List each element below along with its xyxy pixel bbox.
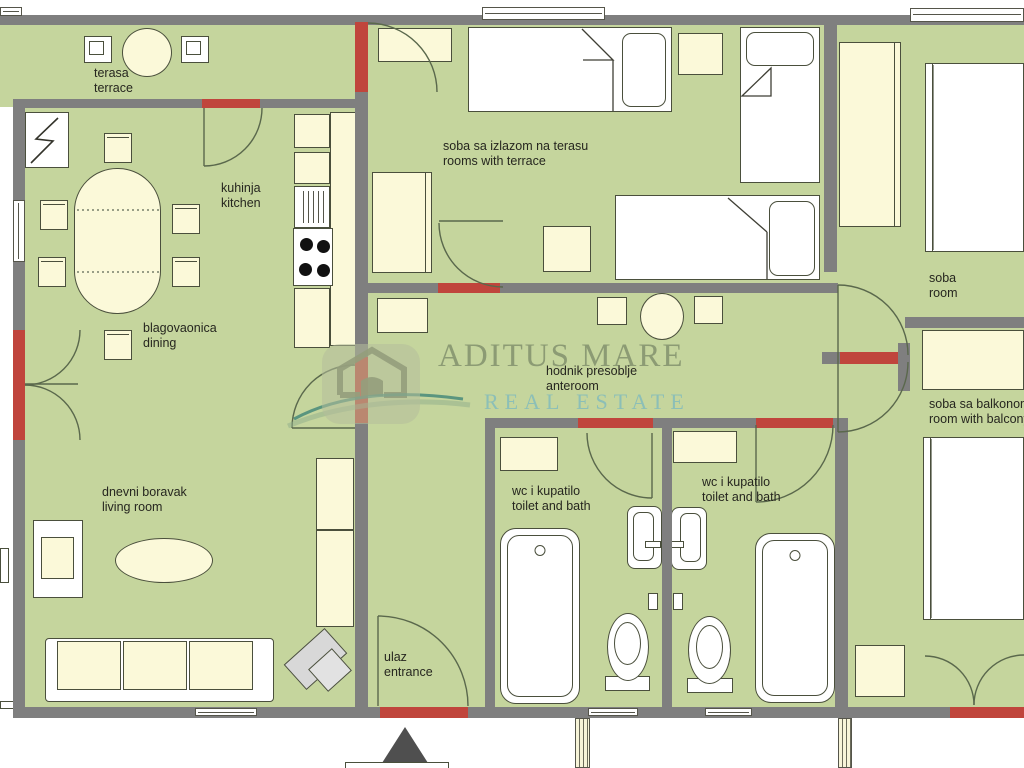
door-bath1 [578,418,653,428]
sofa [45,638,274,702]
room-wardrobe [839,42,901,227]
wall-bath1-left [485,418,495,707]
dining-chair-top [104,133,132,163]
sofa-cushion-1 [57,641,121,690]
window-top-corner [0,7,22,16]
kitchen-cabinet-2 [294,152,330,184]
burner-3 [299,263,312,276]
bath1-tub [500,528,580,704]
label-bedroom-terrace: soba sa izlazom na terasu rooms with ter… [443,139,588,169]
label-room-hr: soba [929,271,957,286]
label-entrance-hr: ulaz [384,650,433,665]
label-entrance-en: entrance [384,665,433,680]
door-dining-french [13,330,25,440]
living-cabinet-upper [316,458,354,530]
label-anteroom: hodnik presoblje anteroom [546,364,637,394]
kitchen-counter [330,112,358,346]
terrace-chair-left-seat [89,41,104,55]
burner-2 [317,240,330,253]
bath1-tub-drain [535,545,546,556]
bedroom-wardrobe [372,172,432,273]
dining-chair-bottom [104,330,132,360]
kitchen-sink-drainer [294,186,330,228]
window-bottom-bath1 [588,708,638,716]
label-entrance: ulaz entrance [384,650,433,680]
anteroom-stool [640,293,684,340]
drainer-stripes [299,191,325,223]
label-room-balcony-hr: soba sa balkonom [929,397,1024,412]
entrance-arrow-icon [382,727,428,763]
bath1-toilet-seat [614,622,641,665]
armchair [33,520,83,598]
label-room-en: room [929,286,957,301]
door-vestibule [840,352,898,364]
exterior-step-left [0,548,9,583]
label-dining-en: dining [143,336,217,351]
bedroom-nightstand-door [378,28,452,62]
burner-1 [300,238,313,251]
door-terrace-dining [202,99,260,108]
label-kitchen-en: kitchen [221,196,261,211]
terrace-chair-right [181,36,209,63]
window-top-bedroom [482,7,605,20]
bath2-sink [671,507,707,570]
label-living-hr: dnevni boravak [102,485,187,500]
label-kitchen: kuhinja kitchen [221,181,261,211]
bath1-faucet [645,541,661,548]
bath1-sink-basin [633,512,654,561]
bath1-paper-holder [648,593,658,610]
bath2-tub-inner [762,540,828,696]
door-balcony [950,707,1024,718]
wall-vestibule-cap [822,352,840,364]
label-bath2-en: toilet and bath [702,490,781,505]
bed-3-pillow [769,201,815,276]
bath1-toilet-bowl [607,613,649,681]
door-bedroom-anteroom [438,283,500,293]
label-bath1: wc i kupatilo toilet and bath [512,484,591,514]
balcony-post-right [838,718,852,768]
kitchen-cabinet-3 [294,288,330,348]
balcony-room-wardrobe [922,330,1024,390]
bath2-tub [755,533,835,703]
wall-vestibule-stub [898,343,910,391]
sofa-cushion-3 [189,641,253,690]
label-living: dnevni boravak living room [102,485,187,515]
window-top-room [910,8,1024,22]
bath2-paper-holder [673,593,683,610]
armchair-cushion [41,537,74,579]
entrance-arrow-base [345,762,449,768]
dining-chair-right2 [172,257,200,287]
balcony-post-left [575,718,590,768]
label-dining-hr: blagovaonica [143,321,217,336]
label-bedroom-terrace-en: rooms with terrace [443,154,588,169]
label-living-en: living room [102,500,187,515]
living-cabinet-lower [316,530,354,627]
label-dining: blagovaonica dining [143,321,217,351]
burner-4 [317,264,330,277]
dining-table [74,168,161,314]
label-anteroom-en: anteroom [546,379,637,394]
wall-dining-top [13,99,368,108]
wall-bath-divider [662,418,672,707]
label-kitchen-hr: kuhinja [221,181,261,196]
dining-chair-right1 [172,204,200,234]
bed-1-pillow [622,33,666,107]
dining-chair-left1 [40,200,68,230]
bedroom-nightstand-mid [543,226,591,272]
label-terrace-hr: terasa [94,66,133,81]
label-bath1-en: toilet and bath [512,499,591,514]
balcony-room-nightstand [855,645,905,697]
sofa-cushion-2 [123,641,187,690]
room-bed [925,63,1024,252]
wall-room-bottom [905,317,1024,328]
balcony-room-bed [923,437,1024,620]
window-bottom-bath2 [705,708,752,716]
label-terrace-en: terrace [94,81,133,96]
wall-bath2-right [835,418,848,707]
bath2-toilet-bowl [688,616,731,684]
bed-2-pillow [746,32,814,66]
bath2-shelf [673,431,737,463]
anteroom-table-right [694,296,723,324]
terrace-chair-right-seat [186,41,201,55]
bath1-shelf [500,437,558,471]
door-bath2 [756,418,833,428]
dining-chair-left2 [38,257,66,287]
label-terrace: terasa terrace [94,66,133,96]
window-left-dining [13,200,25,262]
door-terrace-bedroom [355,22,368,92]
anteroom-cabinet [377,298,428,333]
bath1-sink [627,506,662,569]
floor-plan: ADITUS MARE REAL ESTATE terasa terrace k… [0,0,1024,768]
label-bath2-hr: wc i kupatilo [702,475,781,490]
terrace-chair-left [84,36,112,63]
bedroom-nightstand-beds [678,33,723,75]
floor-terrace [0,25,355,107]
label-anteroom-hr: hodnik presoblje [546,364,637,379]
label-bath2: wc i kupatilo toilet and bath [702,475,781,505]
bath2-toilet-seat [696,625,723,669]
bath2-sink-basin [680,513,701,562]
label-room-balcony-en: room with balcony [929,412,1024,427]
label-room: soba room [929,271,957,301]
bath1-tub-inner [507,535,573,697]
wall-bedroom-room-divider [824,15,837,272]
label-bedroom-terrace-hr: soba sa izlazom na terasu [443,139,588,154]
door-entrance [380,707,468,718]
wall-bottom [13,707,1024,718]
coffee-table [115,538,213,583]
label-bath1-hr: wc i kupatilo [512,484,591,499]
window-bottom-living [195,708,257,716]
anteroom-table-left [597,297,627,325]
bath2-tub-drain [790,550,801,561]
refrigerator [25,112,69,168]
kitchen-cabinet-1 [294,114,330,148]
label-room-balcony: soba sa balkonom room with balcony [929,397,1024,427]
watermark-logo-tile [322,344,420,424]
kitchen-stove [293,228,333,286]
